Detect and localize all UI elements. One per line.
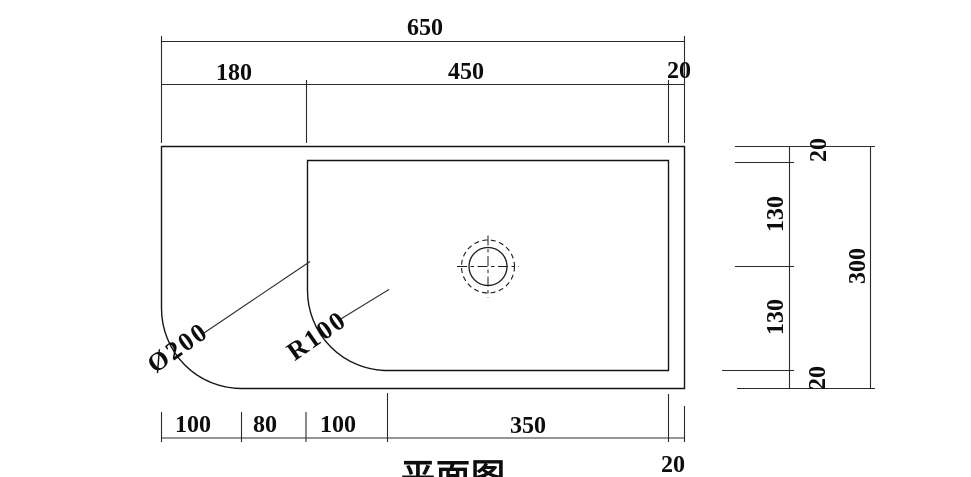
top-dimension-lines [161,36,685,143]
plan-outline [162,147,685,389]
dim-overall-width: 650 [407,16,443,40]
outer-profile [162,147,685,389]
dim-top-450: 450 [448,60,484,84]
dim-overall-height: 300 [846,248,870,284]
dim-bottom-80: 80 [253,413,277,437]
dim-right-130-upper: 130 [764,196,788,232]
drawing-geometry [0,0,971,477]
radius-leader-line [340,290,389,320]
corner-callout-lines [204,262,389,334]
dim-bottom-350: 350 [510,414,546,438]
dim-right-20-bottom: 20 [806,366,830,390]
dim-bottom-100a: 100 [175,413,211,437]
dim-top-20: 20 [667,59,691,83]
cad-plan-drawing: 650 180 450 20 100 80 100 350 20 20 130 … [0,0,971,477]
dim-right-130-lower: 130 [764,299,788,335]
bottom-dimension-lines [161,393,685,442]
dim-bottom-100b: 100 [320,413,356,437]
drawing-caption: 平面图 [401,461,506,477]
dim-top-180: 180 [216,61,252,85]
dim-right-20-top: 20 [807,138,831,162]
diameter-leader-line [204,262,310,334]
drain-hole [457,236,519,298]
dim-bottom-edge-20: 20 [661,453,685,477]
